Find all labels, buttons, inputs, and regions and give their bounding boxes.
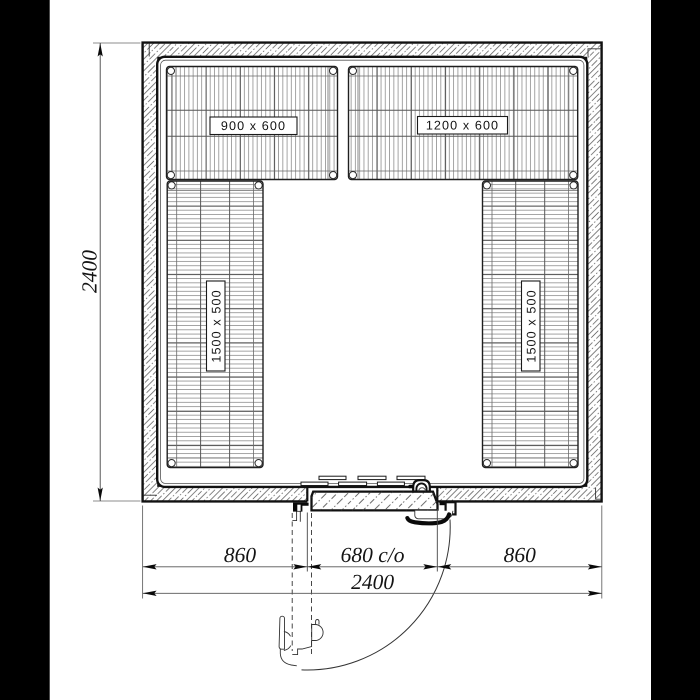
svg-text:1500 x 500: 1500 x 500 — [209, 289, 223, 362]
svg-text:2400: 2400 — [77, 250, 101, 293]
svg-text:900 x 600: 900 x 600 — [221, 119, 286, 133]
svg-text:1200 x 600: 1200 x 600 — [426, 119, 499, 133]
svg-text:860: 860 — [504, 543, 537, 567]
svg-text:860: 860 — [224, 543, 257, 567]
svg-text:2400: 2400 — [351, 570, 394, 594]
svg-text:680 c/o: 680 c/o — [341, 543, 405, 567]
svg-text:1500 x 500: 1500 x 500 — [524, 289, 538, 362]
